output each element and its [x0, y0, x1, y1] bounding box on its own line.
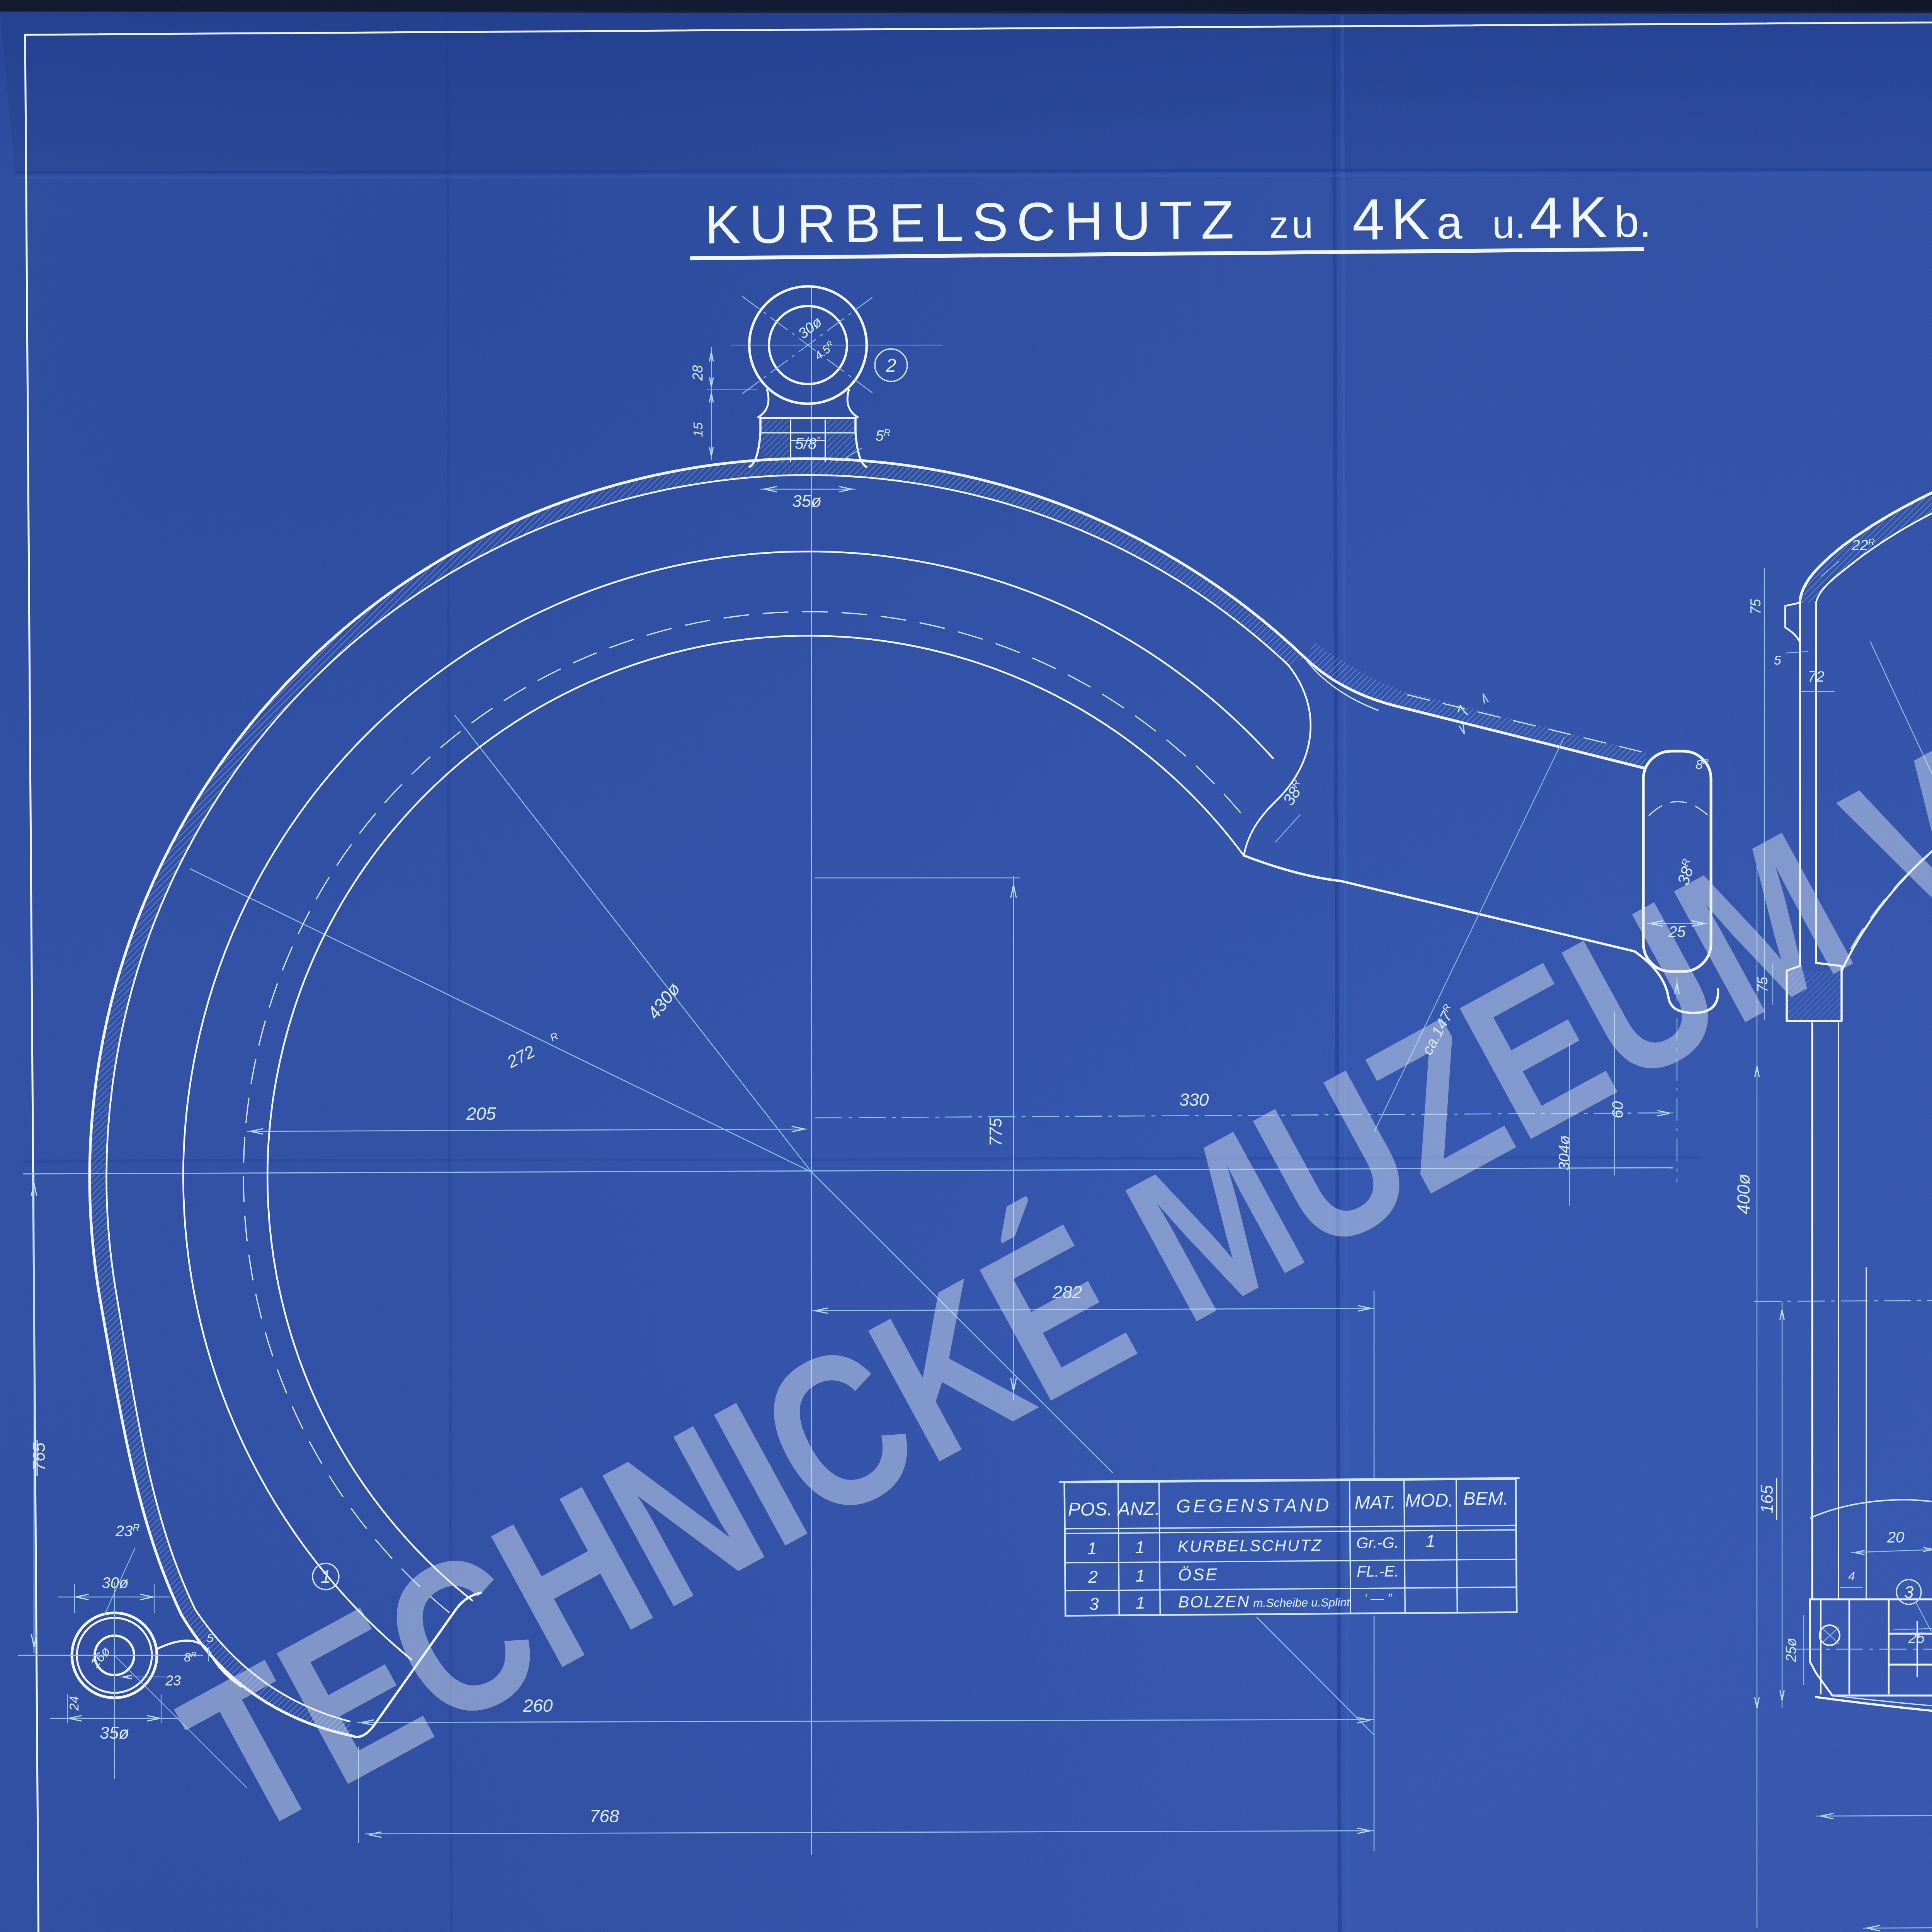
- svg-text:775: 775: [986, 1118, 1005, 1146]
- svg-text:5: 5: [1774, 653, 1781, 667]
- svg-text:24: 24: [66, 1696, 81, 1711]
- svg-text:165: 165: [1757, 1485, 1776, 1514]
- svg-text:3: 3: [1089, 1594, 1099, 1613]
- svg-text:zu: zu: [1269, 202, 1316, 246]
- svg-text:m.Scheibe u.Splint: m.Scheibe u.Splint: [1253, 1596, 1350, 1609]
- svg-text:768: 768: [590, 1806, 619, 1826]
- svg-text:2: 2: [886, 355, 896, 376]
- svg-text:ÖSE: ÖSE: [1178, 1565, 1218, 1584]
- svg-text:K: K: [1568, 185, 1608, 250]
- svg-text:3: 3: [1904, 1583, 1914, 1602]
- svg-text:b.: b.: [1614, 196, 1651, 246]
- svg-text:25: 25: [1908, 1630, 1925, 1646]
- svg-text:BOLZEN: BOLZEN: [1178, 1592, 1250, 1611]
- svg-text:POS.: POS.: [1068, 1499, 1112, 1520]
- svg-text:2: 2: [1088, 1567, 1098, 1586]
- svg-text:MOD.: MOD.: [1405, 1490, 1454, 1511]
- svg-text:GEGENSTAND: GEGENSTAND: [1176, 1495, 1332, 1516]
- svg-text:20: 20: [1887, 1529, 1905, 1546]
- svg-text:1: 1: [1136, 1593, 1145, 1612]
- svg-text:ANZ.: ANZ.: [1116, 1498, 1160, 1519]
- svg-text:35ø: 35ø: [100, 1723, 129, 1742]
- svg-text:MAT.: MAT.: [1355, 1492, 1396, 1513]
- svg-text:35ø: 35ø: [792, 492, 821, 510]
- svg-text:FL.-E.: FL.-E.: [1357, 1563, 1399, 1580]
- svg-text:400ø: 400ø: [1733, 1174, 1753, 1214]
- svg-text:Gr.-G.: Gr.-G.: [1356, 1534, 1399, 1551]
- svg-text:765: 765: [29, 1442, 48, 1471]
- svg-text:KURBELSCHUTZ: KURBELSCHUTZ: [704, 189, 1243, 255]
- svg-text:1: 1: [1135, 1537, 1145, 1556]
- svg-text:1: 1: [1135, 1566, 1145, 1585]
- svg-text:28: 28: [690, 365, 706, 381]
- svg-text:4: 4: [1848, 1569, 1855, 1583]
- svg-text:15: 15: [690, 422, 705, 437]
- svg-text:25ø: 25ø: [1783, 1638, 1799, 1662]
- svg-text:4: 4: [1530, 185, 1563, 250]
- svg-text:K: K: [1391, 186, 1430, 252]
- svg-text:KURBELSCHUTZ: KURBELSCHUTZ: [1178, 1536, 1323, 1555]
- svg-text:1: 1: [1425, 1531, 1435, 1550]
- svg-text:30ø: 30ø: [102, 1574, 129, 1591]
- svg-text:‛ — ”: ‛ — ”: [1364, 1591, 1393, 1606]
- svg-text:205: 205: [466, 1104, 496, 1124]
- svg-text:72: 72: [1808, 668, 1824, 685]
- svg-text:BEM.: BEM.: [1463, 1488, 1509, 1509]
- svg-text:75: 75: [1748, 599, 1764, 614]
- svg-text:a: a: [1436, 196, 1463, 248]
- svg-text:4: 4: [1352, 187, 1385, 252]
- svg-text:u.: u.: [1492, 201, 1526, 247]
- svg-text:1: 1: [1087, 1539, 1097, 1558]
